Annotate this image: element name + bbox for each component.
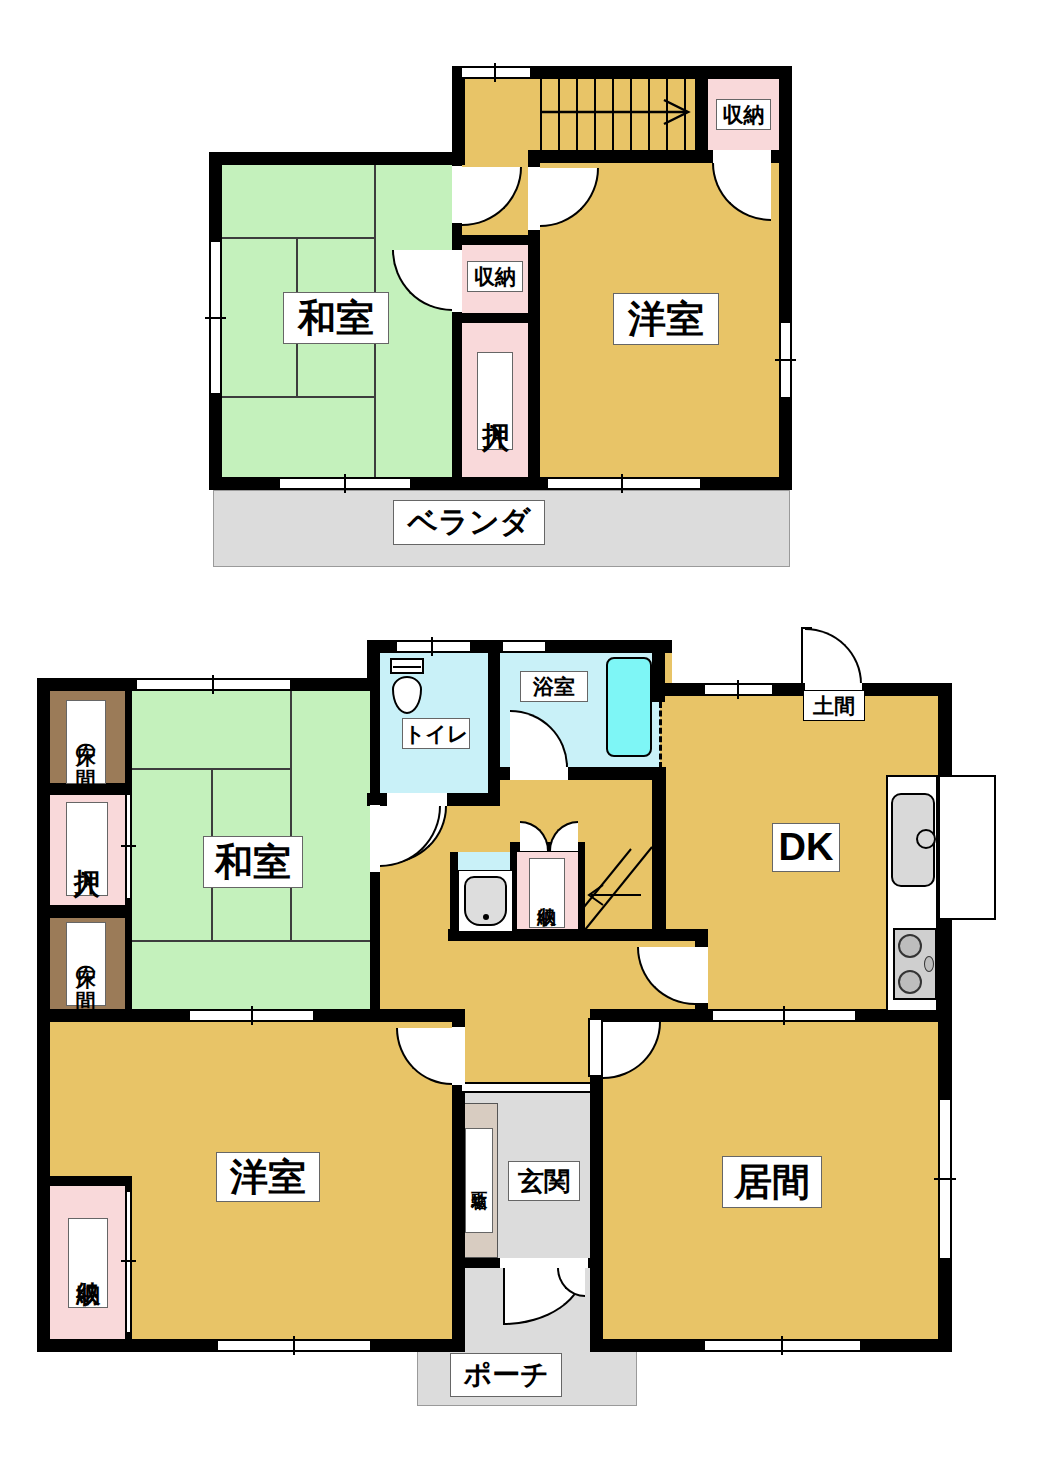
wall xyxy=(695,66,708,150)
fusuma-sliding-door xyxy=(125,1192,132,1332)
stove-burner-icon xyxy=(898,970,922,994)
window-tick xyxy=(344,474,346,493)
wall xyxy=(209,152,465,165)
room-label-1f-tokonoma-lower: 床の間 xyxy=(66,922,106,1006)
door-opening xyxy=(370,805,380,872)
room-label-1f-ima: 居間 xyxy=(722,1156,822,1208)
wall xyxy=(50,1176,132,1186)
window xyxy=(503,640,545,653)
room-label-1f-toilet: トイレ xyxy=(402,718,470,749)
bay-window xyxy=(938,775,996,920)
window-tick xyxy=(205,317,226,319)
wall xyxy=(452,235,540,245)
stove-grill-icon xyxy=(924,956,934,972)
door-opening xyxy=(713,150,771,163)
room-label-1f-tokonoma-upper: 床の間 xyxy=(66,700,106,784)
window-tick xyxy=(293,1336,295,1355)
door-leaf xyxy=(588,1018,603,1077)
stove-burner-icon xyxy=(898,934,922,958)
room-label-2f-veranda: ベランダ xyxy=(393,500,545,545)
room-label-1f-oshiire: 押入 xyxy=(66,802,108,896)
window-tick xyxy=(431,637,433,656)
room-label-2f-closet-stairs: 収納 xyxy=(716,99,771,130)
stairs-down-icon xyxy=(583,845,653,933)
wall xyxy=(50,905,132,918)
open-boundary-dashed xyxy=(659,702,662,768)
room-label-1f-closet-youshitsu: 収納 xyxy=(68,1218,108,1308)
window-tick xyxy=(737,680,739,699)
wall xyxy=(450,852,458,935)
window xyxy=(462,66,530,79)
window-tick xyxy=(621,474,623,493)
wall xyxy=(652,768,666,941)
window-tick xyxy=(494,63,496,82)
room-label-1f-genkan: 玄関 xyxy=(508,1161,580,1201)
room-label-1f-getabako: 下駄箱 xyxy=(465,1128,493,1233)
door-opening xyxy=(452,166,462,223)
room-label-1f-youshitsu: 洋室 xyxy=(216,1152,320,1202)
room-label-1f-bath: 浴室 xyxy=(520,671,588,702)
tatami-line xyxy=(222,237,375,239)
wall xyxy=(367,640,380,691)
washbasin-drain-icon xyxy=(483,914,489,920)
faucet-icon xyxy=(916,829,936,849)
door-opening xyxy=(452,250,462,312)
window xyxy=(397,640,470,653)
door-opening xyxy=(510,767,568,780)
room-label-2f-youshitsu: 洋室 xyxy=(613,293,719,345)
room-label-2f-oshiire: 押入 xyxy=(477,352,513,450)
window-tick xyxy=(934,1178,956,1180)
room-label-2f-closet-hall: 収納 xyxy=(467,261,523,292)
tatami-line xyxy=(222,396,375,398)
door-opening xyxy=(695,947,708,1003)
door-opening xyxy=(387,793,447,806)
toilet-tank-line xyxy=(393,666,421,668)
window-tick xyxy=(121,845,136,847)
wall xyxy=(590,1077,603,1352)
room-label-1f-doma: 土間 xyxy=(803,690,865,721)
bathtub-icon xyxy=(606,657,652,757)
room-label-2f-washitsu: 和室 xyxy=(283,292,389,344)
entrance-threshold xyxy=(500,1258,588,1268)
window-tick xyxy=(783,1006,785,1025)
tatami-line xyxy=(290,691,292,940)
door-opening xyxy=(452,1027,465,1085)
window-tick xyxy=(775,359,796,361)
window-tick xyxy=(781,1336,783,1355)
stairs-up-arrow-icon xyxy=(540,95,692,131)
window-tick xyxy=(212,675,214,694)
room-label-1f-dk: DK xyxy=(772,823,840,872)
wall xyxy=(50,783,132,795)
genkan-threshold xyxy=(462,1082,590,1093)
door-opening xyxy=(528,167,540,230)
window xyxy=(548,477,700,490)
floor-plan: 和室 洋室 収納 収納 押入 ベランダ xyxy=(0,0,1042,1473)
wall xyxy=(452,66,465,158)
wall xyxy=(452,313,540,323)
room-label-1f-closet-hall: 収納 xyxy=(529,858,565,928)
wall xyxy=(452,1258,503,1268)
room-label-1f-porch: ポーチ xyxy=(450,1353,562,1397)
room-label-1f-washitsu: 和室 xyxy=(203,836,303,888)
wall xyxy=(779,66,792,490)
window-tick xyxy=(251,1006,253,1025)
tatami-line xyxy=(132,940,370,942)
door-arc xyxy=(805,628,862,684)
window-tick xyxy=(121,1260,136,1262)
